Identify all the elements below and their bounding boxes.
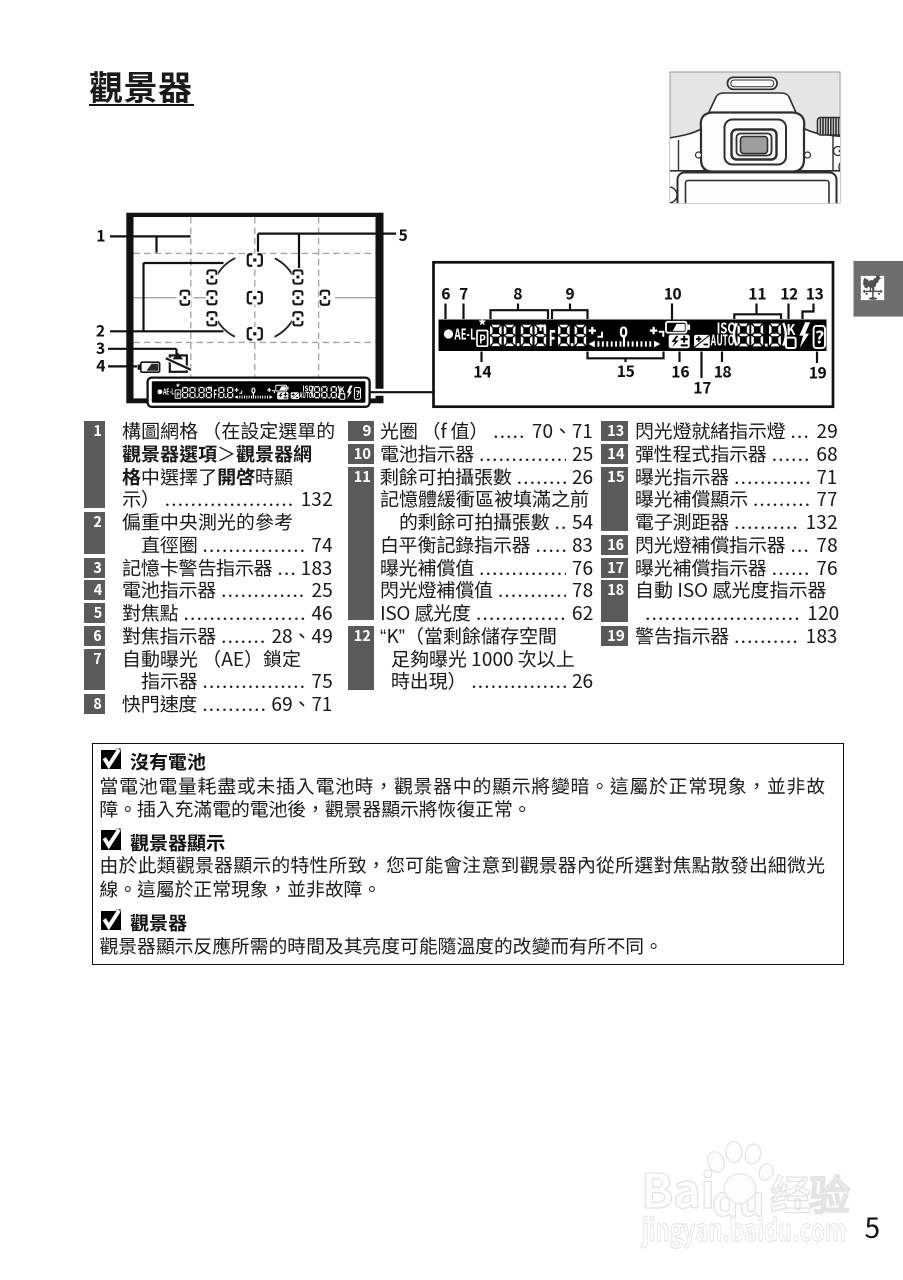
svg-text:1: 1 [96,224,105,246]
svg-text:jingyan.baidu.com: jingyan.baidu.com [641,1206,846,1250]
svg-text:16: 16 [671,361,689,383]
svg-text:19: 19 [809,362,827,384]
svg-text:12: 12 [780,282,798,304]
svg-text:17: 17 [693,376,711,398]
svg-text:14: 14 [473,361,492,383]
svg-text:10: 10 [664,282,682,304]
svg-text:8: 8 [514,282,523,304]
svg-text:13: 13 [806,282,824,304]
svg-text:9: 9 [566,282,575,304]
svg-text:15: 15 [617,360,635,382]
svg-text:18: 18 [714,361,732,383]
svg-text:11: 11 [748,282,766,304]
svg-text:6: 6 [441,282,450,304]
svg-text:7: 7 [459,282,468,304]
svg-text:4: 4 [96,355,106,377]
svg-text:5: 5 [398,224,408,246]
